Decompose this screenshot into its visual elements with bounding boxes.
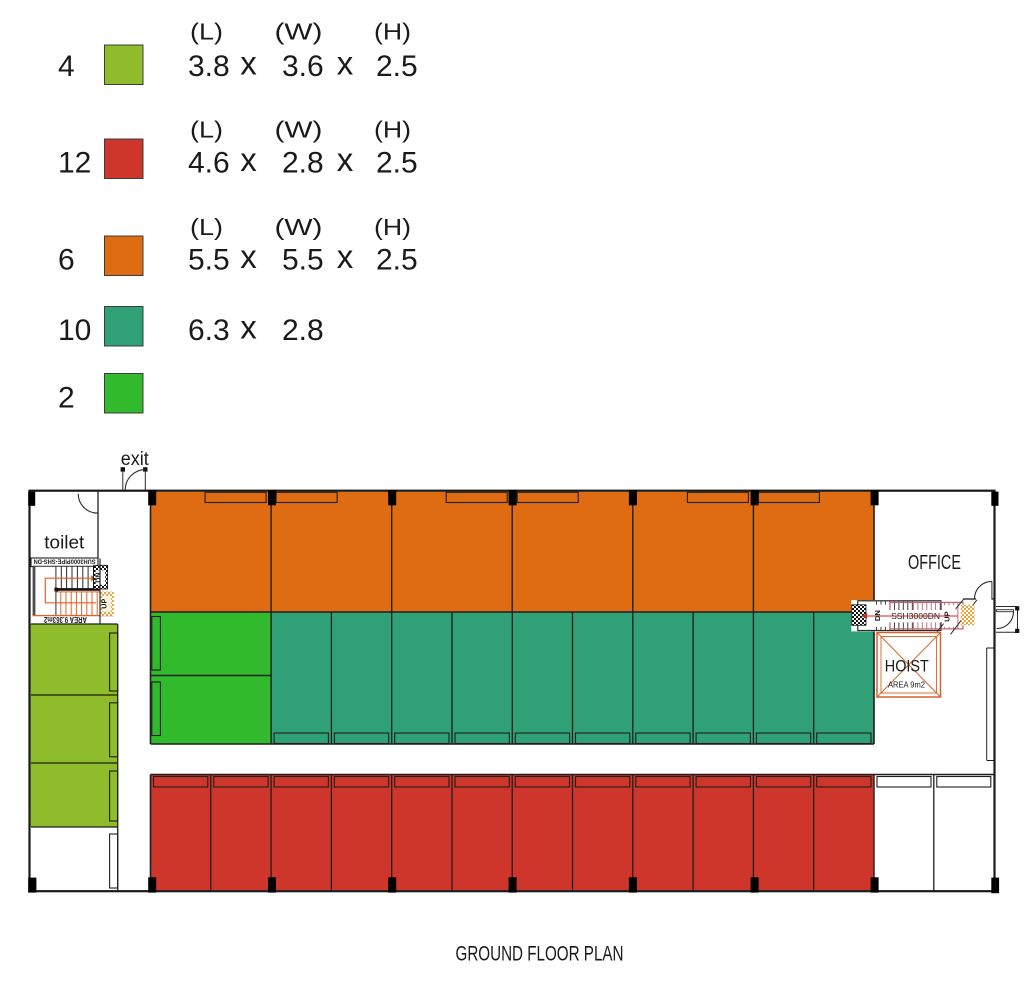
svg-text:UP: UP [100, 599, 109, 609]
svg-text:2.5: 2.5 [376, 147, 418, 180]
svg-text:OFFICE: OFFICE [908, 551, 961, 574]
svg-text:5.5: 5.5 [282, 244, 324, 277]
svg-text:5.5: 5.5 [188, 244, 230, 277]
svg-text:4: 4 [58, 50, 75, 83]
svg-text:6.3: 6.3 [188, 314, 230, 347]
svg-text:(H): (H) [374, 214, 411, 240]
svg-text:exit: exit [121, 448, 150, 470]
svg-text:(W): (W) [275, 117, 323, 143]
svg-text:(W): (W) [275, 19, 323, 45]
svg-text:DN: DN [93, 572, 102, 582]
svg-text:AREA 9.363m2: AREA 9.363m2 [43, 615, 87, 624]
svg-text:x: x [240, 309, 257, 346]
svg-text:6: 6 [58, 244, 75, 277]
svg-text:x: x [240, 238, 257, 275]
svg-text:AREA 9m2: AREA 9m2 [888, 680, 925, 690]
svg-text:12: 12 [58, 147, 91, 180]
svg-text:3.6: 3.6 [282, 50, 324, 83]
svg-text:(H): (H) [374, 19, 411, 45]
svg-text:x: x [240, 141, 257, 178]
svg-text:(H): (H) [374, 117, 411, 143]
svg-text:SUH3000PIPE-SHS-DN: SUH3000PIPE-SHS-DN [34, 558, 96, 565]
svg-text:UP: UP [942, 611, 951, 622]
svg-text:x: x [240, 45, 257, 82]
svg-text:2.8: 2.8 [282, 147, 324, 180]
svg-text:(W): (W) [275, 214, 323, 240]
svg-text:10: 10 [58, 314, 91, 347]
svg-text:4.6: 4.6 [188, 147, 230, 180]
svg-text:3.8: 3.8 [188, 50, 230, 83]
svg-text:(L): (L) [190, 117, 223, 143]
svg-text:(L): (L) [190, 19, 223, 45]
svg-text:GROUND FLOOR PLAN: GROUND FLOOR PLAN [456, 943, 624, 966]
svg-text:x: x [337, 45, 354, 82]
svg-text:HOIST: HOIST [885, 657, 929, 676]
svg-text:2.8: 2.8 [282, 314, 324, 347]
svg-text:toilet: toilet [44, 532, 84, 553]
svg-text:x: x [337, 238, 354, 275]
svg-text:(L): (L) [190, 214, 223, 240]
svg-text:2.5: 2.5 [376, 50, 418, 83]
svg-text:x: x [337, 141, 354, 178]
svg-text:2: 2 [58, 382, 75, 415]
svg-text:2.5: 2.5 [376, 244, 418, 277]
